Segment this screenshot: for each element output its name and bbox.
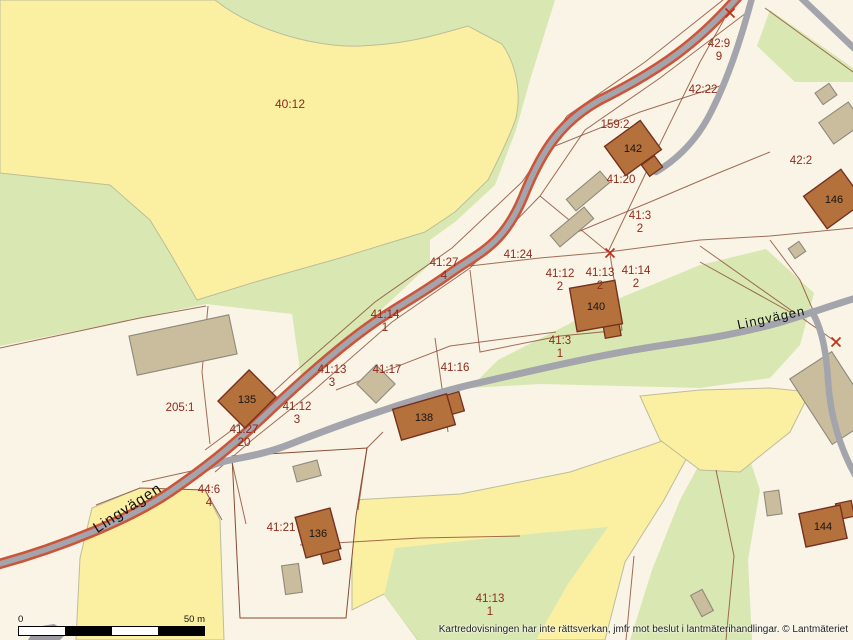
parcel-label: 40:12 [275, 97, 305, 111]
parcel-label: 159:2 [601, 119, 630, 131]
parcel-label: 42:2 [790, 155, 812, 167]
parcel-label: 41:20 [607, 174, 636, 186]
building-number-label: 146 [825, 194, 843, 206]
scale-bar-segment [112, 627, 158, 635]
outbuilding [282, 563, 303, 594]
building-number-label: 138 [415, 412, 433, 424]
parcel-label: 41:17 [373, 364, 402, 376]
building-number-label: 142 [624, 143, 642, 155]
building-number-label: 140 [587, 301, 605, 313]
scale-bar-segment [65, 627, 111, 635]
parcel-label: 41:16 [441, 362, 470, 374]
map-canvas[interactable]: 13513613814014214414640:1242:9942:22159:… [0, 0, 853, 640]
scale-bar-zero-label: 0 [18, 614, 23, 626]
parcel-label: 205:1 [166, 402, 195, 414]
parcel-label: 42:99 [708, 38, 730, 63]
building-number-label: 144 [814, 521, 832, 533]
map-disclaimer: Kartredovisningen har inte rättsverkan, … [439, 624, 848, 635]
scale-bar-segment [19, 627, 65, 635]
parcel-label: 41:142 [622, 265, 651, 290]
outbuilding [550, 207, 593, 247]
scale-bar-distance-label: 50 m [184, 614, 205, 626]
outbuilding [819, 102, 853, 144]
parcel-label: 42:22 [689, 84, 718, 96]
survey-mark-icon [832, 338, 841, 347]
scale-bar: 0 50 m [18, 614, 205, 636]
parcel-label: 41:24 [504, 249, 533, 261]
outbuilding [566, 171, 609, 211]
land-region-green [757, 10, 853, 82]
outbuilding [129, 315, 237, 375]
parcel-label: 41:123 [283, 401, 312, 426]
parcel-label: 41:21 [267, 522, 296, 534]
scale-bar-graphic [18, 626, 205, 636]
outbuilding [815, 83, 837, 104]
parcel-label: 41:133 [318, 364, 347, 389]
map-viewport[interactable]: 13513613814014214414640:1242:9942:22159:… [0, 0, 853, 640]
building-number-label: 136 [309, 528, 327, 540]
outbuilding [764, 490, 782, 516]
scale-bar-segment [158, 627, 204, 635]
parcel-label: 41:32 [629, 210, 651, 235]
outbuilding [788, 241, 806, 258]
scale-bar-labels: 0 50 m [18, 614, 205, 626]
building-number-label: 135 [238, 394, 256, 406]
